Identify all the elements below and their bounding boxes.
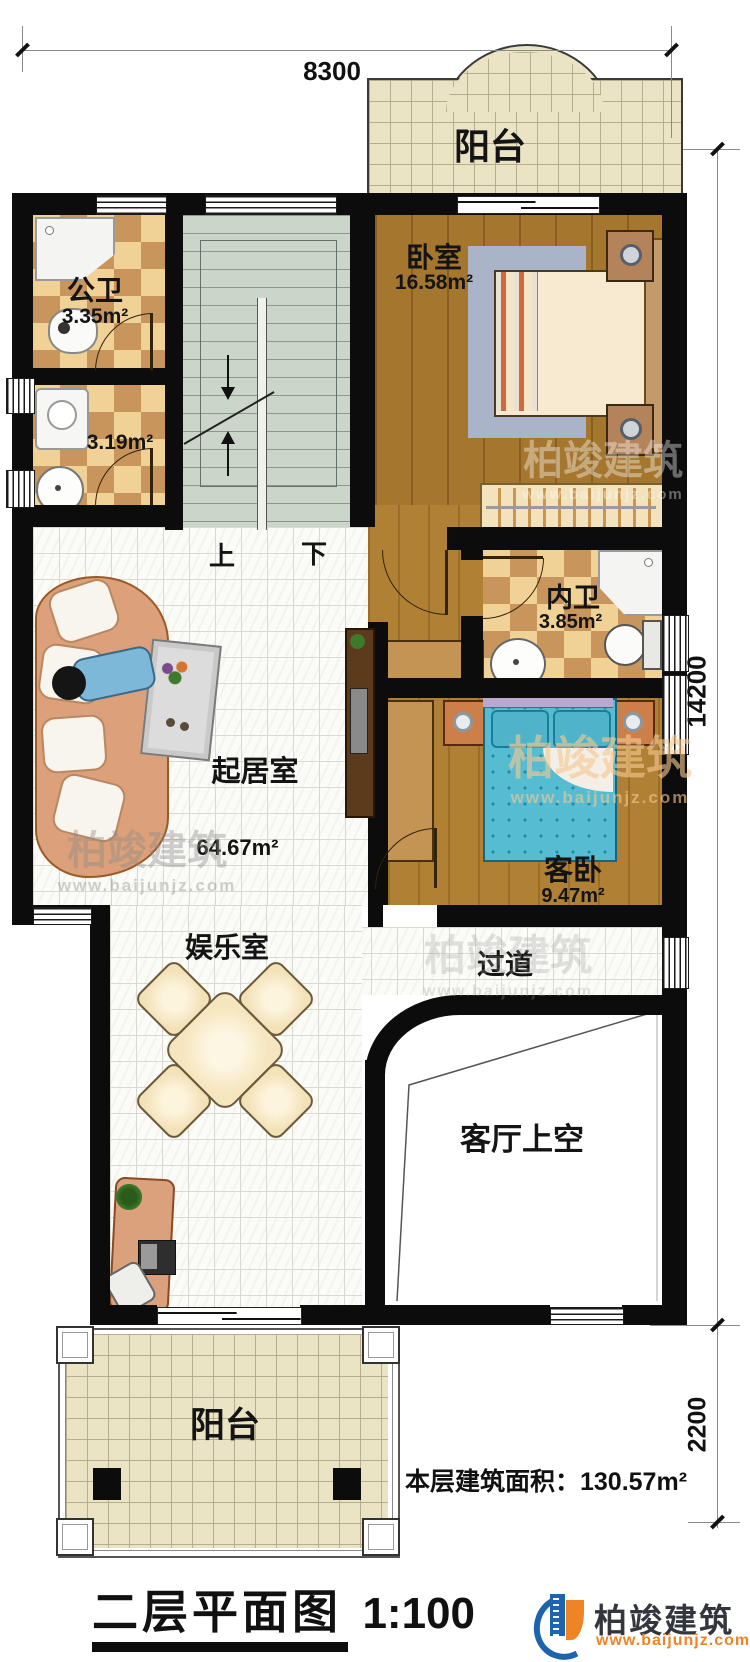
area-label-inner-bath: 3.85m²: [518, 612, 623, 633]
window-top-bath: [96, 195, 167, 215]
area-label-laundry: 3.19m²: [70, 432, 170, 454]
table-cup-icon: [180, 722, 189, 731]
dim-ext-top-right: [671, 26, 672, 138]
nightstand-ornament-icon: [620, 418, 642, 440]
wall-void-left: [365, 1060, 385, 1305]
area-label-bedroom: 16.58m²: [384, 272, 484, 294]
wall-left: [12, 215, 33, 925]
wall-bedroom-bottom: [447, 527, 687, 550]
wall-innerbath-left-a: [461, 550, 483, 560]
plant-icon: [350, 634, 365, 649]
room-label-public-bath: 公卫: [40, 276, 150, 305]
stair-arrow-up-icon: [221, 431, 235, 444]
wall-innerbath-guest: [352, 678, 687, 698]
room-label-living-void: 客厅上空: [432, 1124, 612, 1157]
area-label-public-bath: 3.35m²: [40, 306, 150, 328]
tv-icon: [350, 688, 368, 754]
wall-stairs-bedroom: [350, 193, 375, 527]
flower-bouquet-icon: [158, 658, 192, 688]
logo-brand-site: www.baijunjz.com: [596, 1632, 750, 1650]
wall-bottom-b: [300, 1305, 550, 1325]
monitor-screen: [141, 1244, 157, 1269]
wall-bottom-a: [90, 1305, 157, 1325]
room-label-living: 起居室: [185, 757, 325, 787]
wall-left-lower: [90, 925, 110, 1325]
nightstand-ornament-icon: [623, 712, 643, 732]
sliding-door-bedroom-balcony: [457, 196, 600, 214]
stair-label-down: 下: [296, 541, 332, 568]
column-icon: [362, 1518, 400, 1556]
wall-bath-bottom: [12, 505, 183, 527]
washer-door-icon: [47, 400, 77, 430]
dim-label-right-upper: 14200: [682, 632, 713, 752]
title-underline: [92, 1642, 348, 1652]
wall-guest-bottom-a: [368, 905, 383, 927]
room-label-entertainment: 娱乐室: [157, 933, 297, 962]
column-icon: [56, 1326, 94, 1364]
room-label-balcony-top: 阳台: [420, 128, 560, 166]
window-bottom-void: [550, 1307, 624, 1325]
room-label-balcony-bottom: 阳台: [155, 1408, 295, 1445]
stair-arrow-down-icon: [221, 387, 235, 400]
nightstand-ornament-icon: [453, 712, 473, 732]
stair-label-up: 上: [204, 543, 240, 570]
toilet-tank-icon: [642, 620, 662, 670]
room-label-corridor: 过道: [455, 950, 555, 979]
shower-drain-icon: [45, 226, 54, 235]
dim-ext-right-top: [683, 149, 740, 150]
brand-logo: 柏竣建筑 www.baijunjz.com: [532, 1588, 747, 1658]
column-icon: [362, 1326, 400, 1364]
bed-blanket-stripes: [496, 272, 538, 411]
window-top-stairs: [205, 195, 337, 215]
plant-icon: [116, 1184, 142, 1210]
window-left-laundry2: [6, 470, 35, 508]
column-icon: [56, 1518, 94, 1556]
nightstand-ornament-icon: [620, 244, 642, 266]
sliding-door-entertainment-balcony: [157, 1307, 302, 1325]
dim-label-right-lower: 2200: [684, 1380, 713, 1470]
wardrobe-rod: [486, 506, 656, 509]
dim-ext-right-mid: [650, 1325, 740, 1326]
room-label-inner-bath: 内卫: [518, 584, 628, 612]
window-right-corridor: [662, 937, 689, 989]
wall-bath-stairs: [165, 215, 183, 530]
room-label-bedroom: 卧室: [384, 243, 484, 272]
pier-icon: [93, 1468, 121, 1500]
wall-guest-bottom-b: [437, 905, 687, 927]
sofa-cushion: [40, 714, 108, 774]
plan-title-text: 二层平面图: [92, 1586, 342, 1638]
shower-drain-icon: [644, 558, 653, 567]
sink-dot-icon: [513, 659, 519, 665]
area-label-living: 64.67m²: [180, 836, 295, 859]
plan-title: 二层平面图 1:100: [92, 1576, 475, 1642]
floor-area-note: 本层建筑面积：130.57m²: [405, 1462, 687, 1498]
stair-stringer: [257, 298, 267, 530]
pier-icon: [333, 1468, 361, 1500]
logo-building-icon: [550, 1594, 565, 1636]
floor-plan-page: 阳台: [0, 0, 750, 1662]
sink-dot-icon: [55, 485, 61, 491]
dim-label-top: 8300: [282, 56, 382, 87]
window-left-laundry: [6, 378, 35, 414]
pillow-icon: [491, 710, 549, 748]
wall-right: [662, 215, 687, 1325]
stair-arrow-down-stem: [227, 355, 229, 387]
guest-bed-header: [483, 698, 613, 708]
plan-title-scale: 1:100: [362, 1589, 475, 1638]
room-label-guest-bedroom: 客卧: [523, 856, 623, 886]
dim-line-top: [22, 50, 672, 51]
table-cup-icon: [166, 718, 175, 727]
pillow-icon: [553, 710, 611, 748]
person-head: [52, 666, 86, 700]
window-left-offset: [33, 907, 92, 925]
wall-corridor-bottom: [455, 995, 662, 1015]
area-label-guest-bedroom: 9.47m²: [523, 886, 623, 907]
logo-swoosh-icon: [525, 1586, 604, 1662]
stair-arrow-up-stem: [227, 444, 229, 476]
stair-inner-outline: [200, 240, 337, 487]
